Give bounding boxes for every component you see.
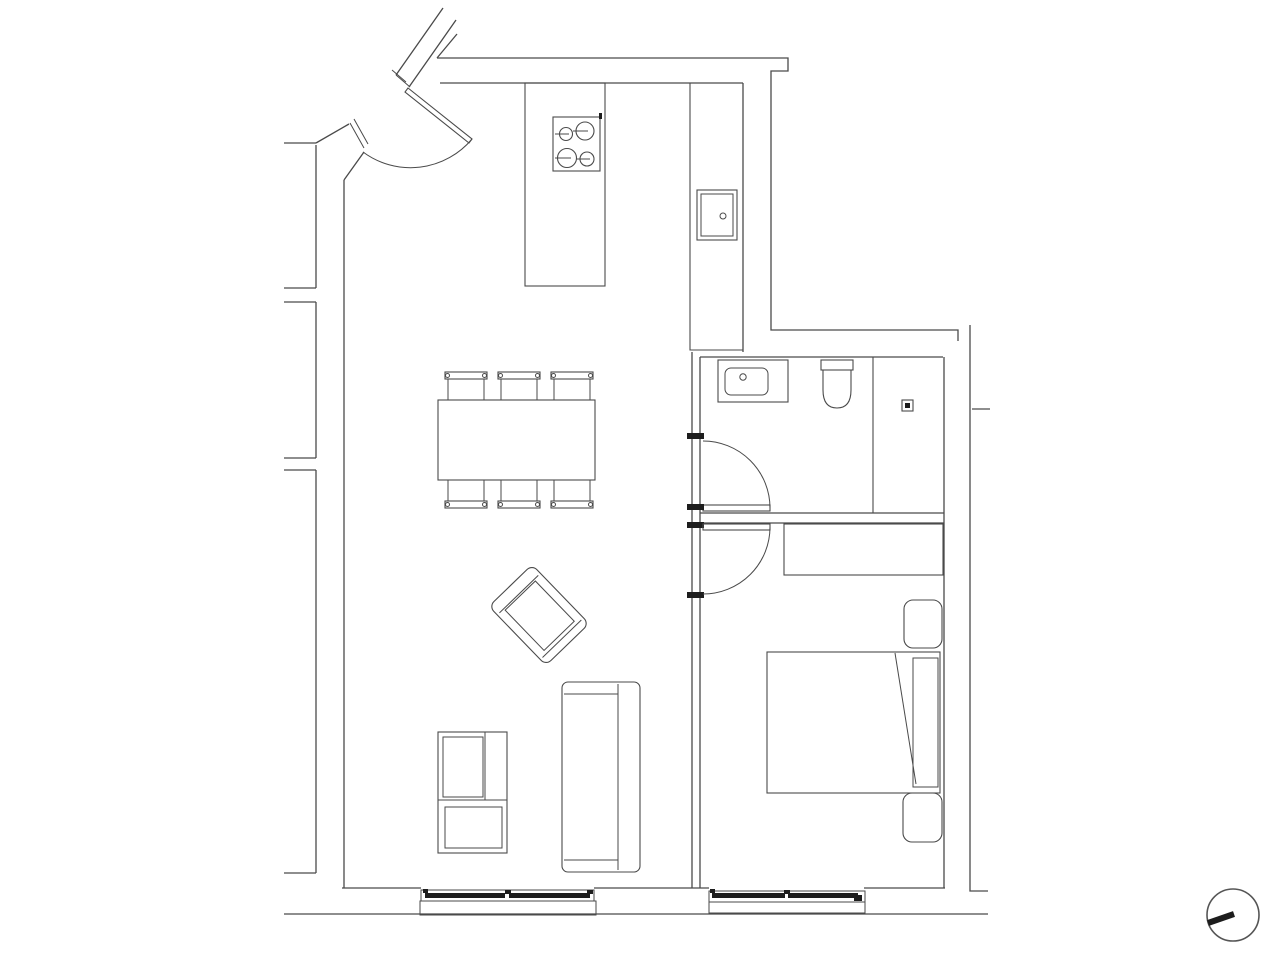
top-wall-chamfer [437,34,457,58]
kitchen-sink-basin [701,194,733,236]
bedroom-window [709,889,865,913]
toilet [821,360,853,408]
kitchen-sink-faucet [720,213,726,219]
bathroom-door [703,441,770,511]
toilet-tank [821,360,853,370]
entrance-wall-upper-outer [396,8,443,75]
counter-outline [690,83,743,350]
floor-plan-page [0,0,1280,960]
dining-set [438,372,595,508]
shower [873,357,913,513]
dining-chair [551,480,593,508]
entrance-door-leaf [405,88,472,143]
compass-needle [1208,914,1234,923]
entrance-wall-lower-inner [344,152,364,180]
window-glazing-bar [712,893,785,898]
bed-pillow-top [904,600,942,648]
bed-duvet-fold-strip [913,658,938,787]
kitchen-island [525,83,605,286]
entrance-door [316,8,472,180]
dining-chair [445,480,487,508]
shelf-unit [438,732,507,853]
dining-chair [445,372,487,400]
bath-bedroom-dividing-wall [700,513,944,523]
floor-plan-canvas [0,0,1280,960]
kitchen-counter [690,83,743,352]
window-glazing-bar [425,893,505,898]
kitchen-sink-outer [697,190,737,240]
right-boundary-line [970,325,988,891]
living-area [438,565,640,872]
shower-drain-center [905,403,910,408]
bathroom [687,357,913,598]
entrance-wall-lower-outer [316,124,349,143]
entrance-door-swing-arc [363,139,472,168]
vanity-basin [725,368,768,395]
wardrobe [784,524,943,575]
entrance-wall-upper-inner [409,20,456,87]
vanity-faucet [740,374,746,380]
bathroom-vanity [718,360,788,402]
kitchen [525,83,743,352]
bathroom-door-leaf [703,505,770,511]
toilet-bowl [823,370,851,408]
window-sill [709,902,865,913]
party-wall-stub-lower [284,458,316,470]
door-jamb-marks [687,433,704,598]
double-bed [767,600,942,842]
shelf-lower-inner [445,807,502,848]
living-room-window [420,889,596,915]
dining-chair [498,372,540,400]
windows [420,889,865,915]
window-glazing-bar [509,893,590,898]
dining-chair [551,372,593,400]
dining-table [438,400,595,480]
party-wall-stub-upper [284,288,316,302]
bedroom-door-leaf [703,524,770,530]
entrance-lower-jamb [350,119,368,148]
entrance-upper-jamb [392,70,410,87]
bathroom-door-swing-arc [703,441,770,508]
north-compass [1207,889,1259,941]
bedroom [703,524,943,842]
shelf-divider [438,732,507,800]
exterior-walls [284,34,990,914]
window-glazing-bar [788,893,858,898]
bed-pillow-bottom [903,793,942,842]
armchair [489,565,589,666]
shelf-upper-inner [443,737,483,797]
cooktop [553,113,602,171]
sofa [562,682,640,872]
cooktop-corner-tick [599,113,602,119]
bedroom-door [703,524,770,594]
left-wall-outer [284,143,316,873]
window-sill [420,901,596,915]
dining-chair [498,480,540,508]
bedroom-door-swing-arc [703,527,770,594]
